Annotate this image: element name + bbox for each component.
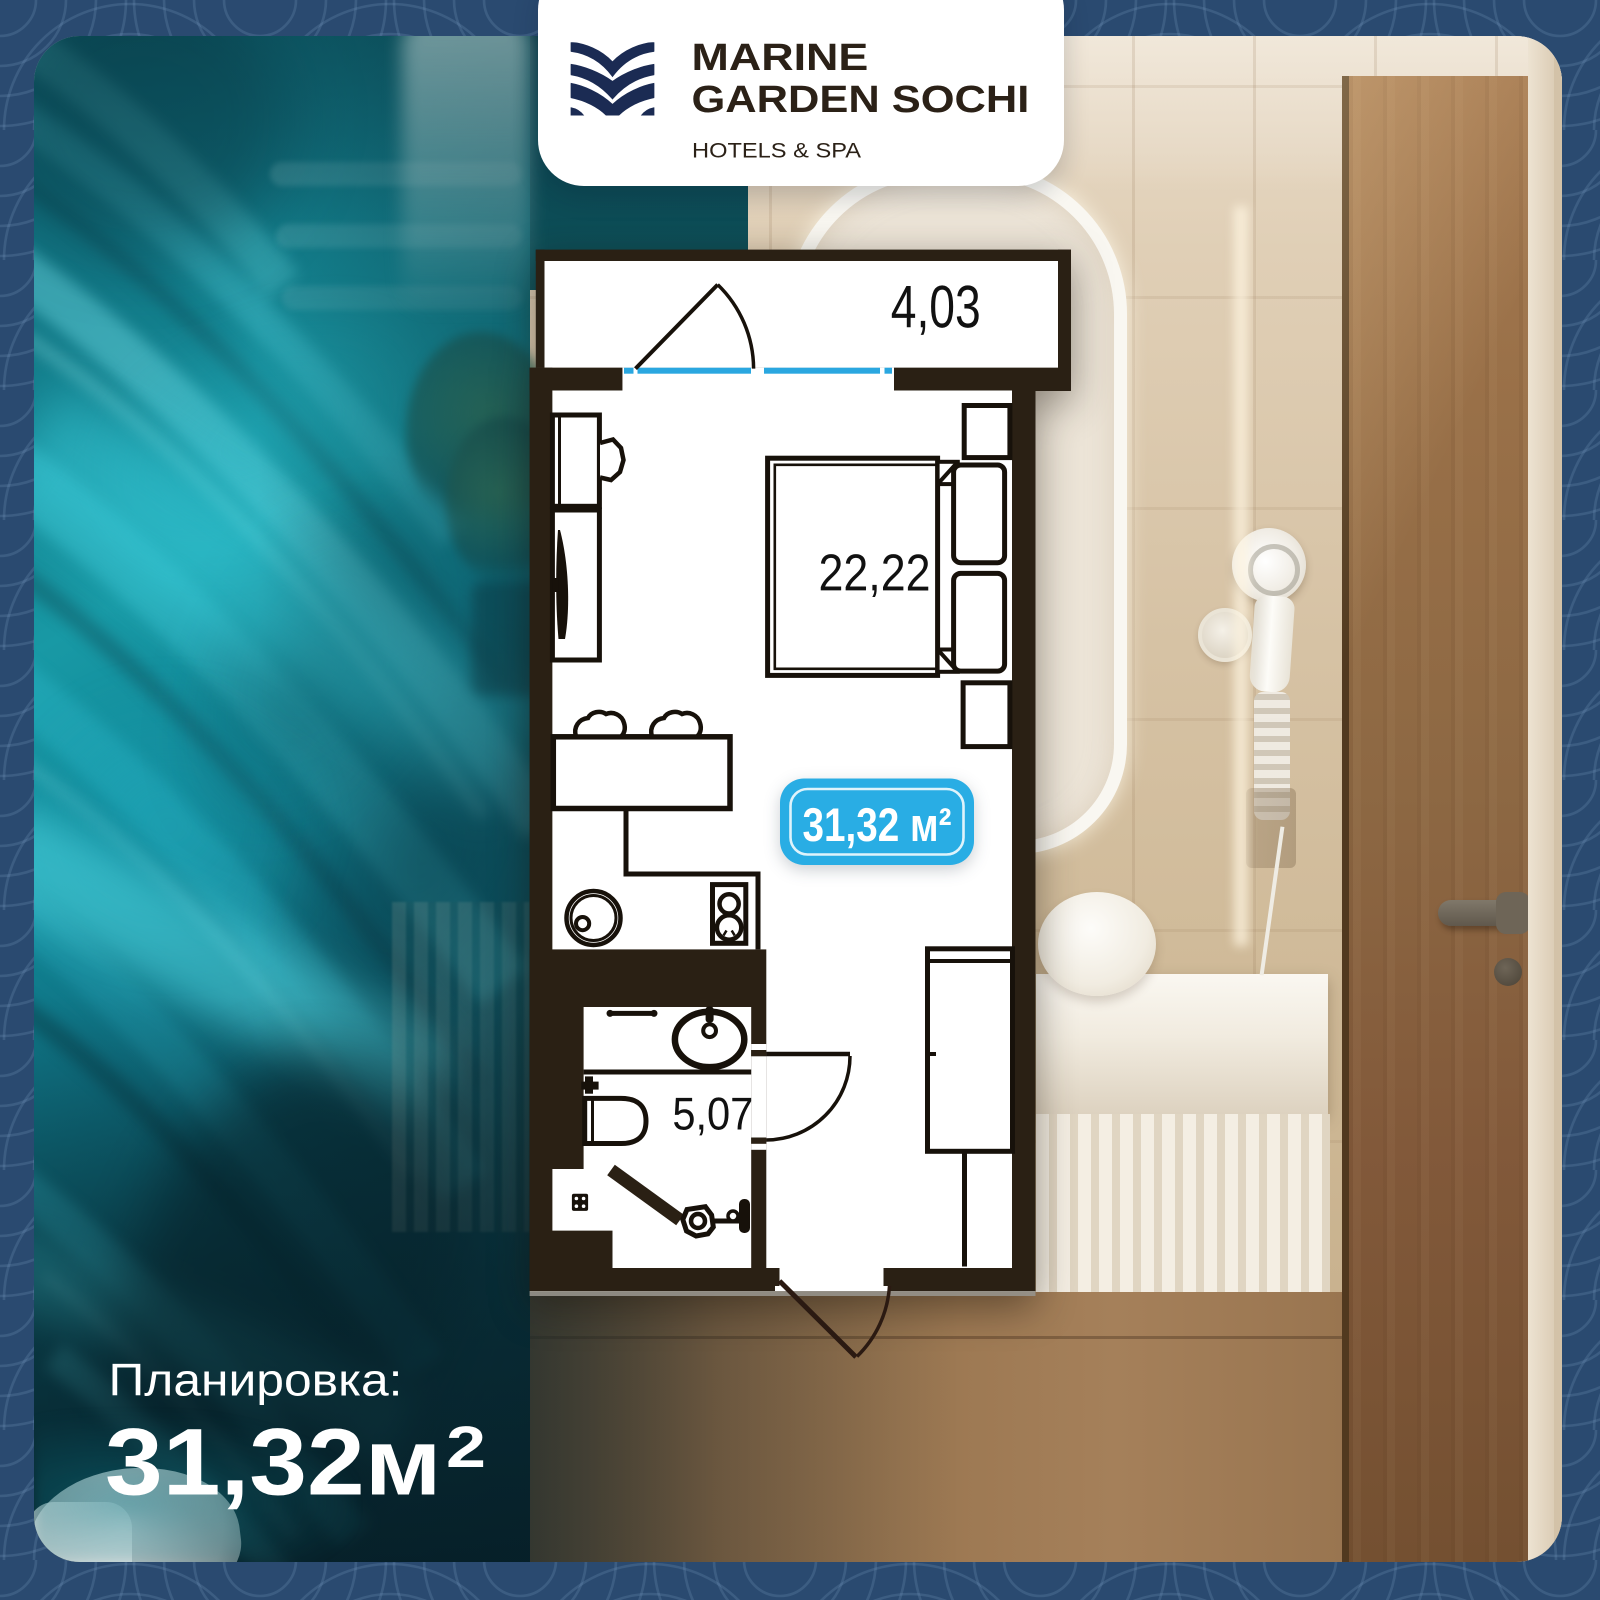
svg-text:31,32м: 31,32м [105, 1410, 442, 1516]
svg-text:MARINE: MARINE [692, 37, 869, 79]
svg-text:2: 2 [446, 1415, 486, 1480]
svg-text:22,22: 22,22 [819, 544, 931, 602]
svg-text:HOTELS & SPA: HOTELS & SPA [692, 140, 861, 163]
svg-text:31,32 м²: 31,32 м² [803, 798, 952, 851]
svg-text:Планировка:: Планировка: [109, 1355, 403, 1406]
svg-text:4,03: 4,03 [891, 273, 981, 340]
svg-text:GARDEN SOCHI: GARDEN SOCHI [692, 79, 1030, 121]
svg-text:5,07: 5,07 [672, 1088, 753, 1140]
